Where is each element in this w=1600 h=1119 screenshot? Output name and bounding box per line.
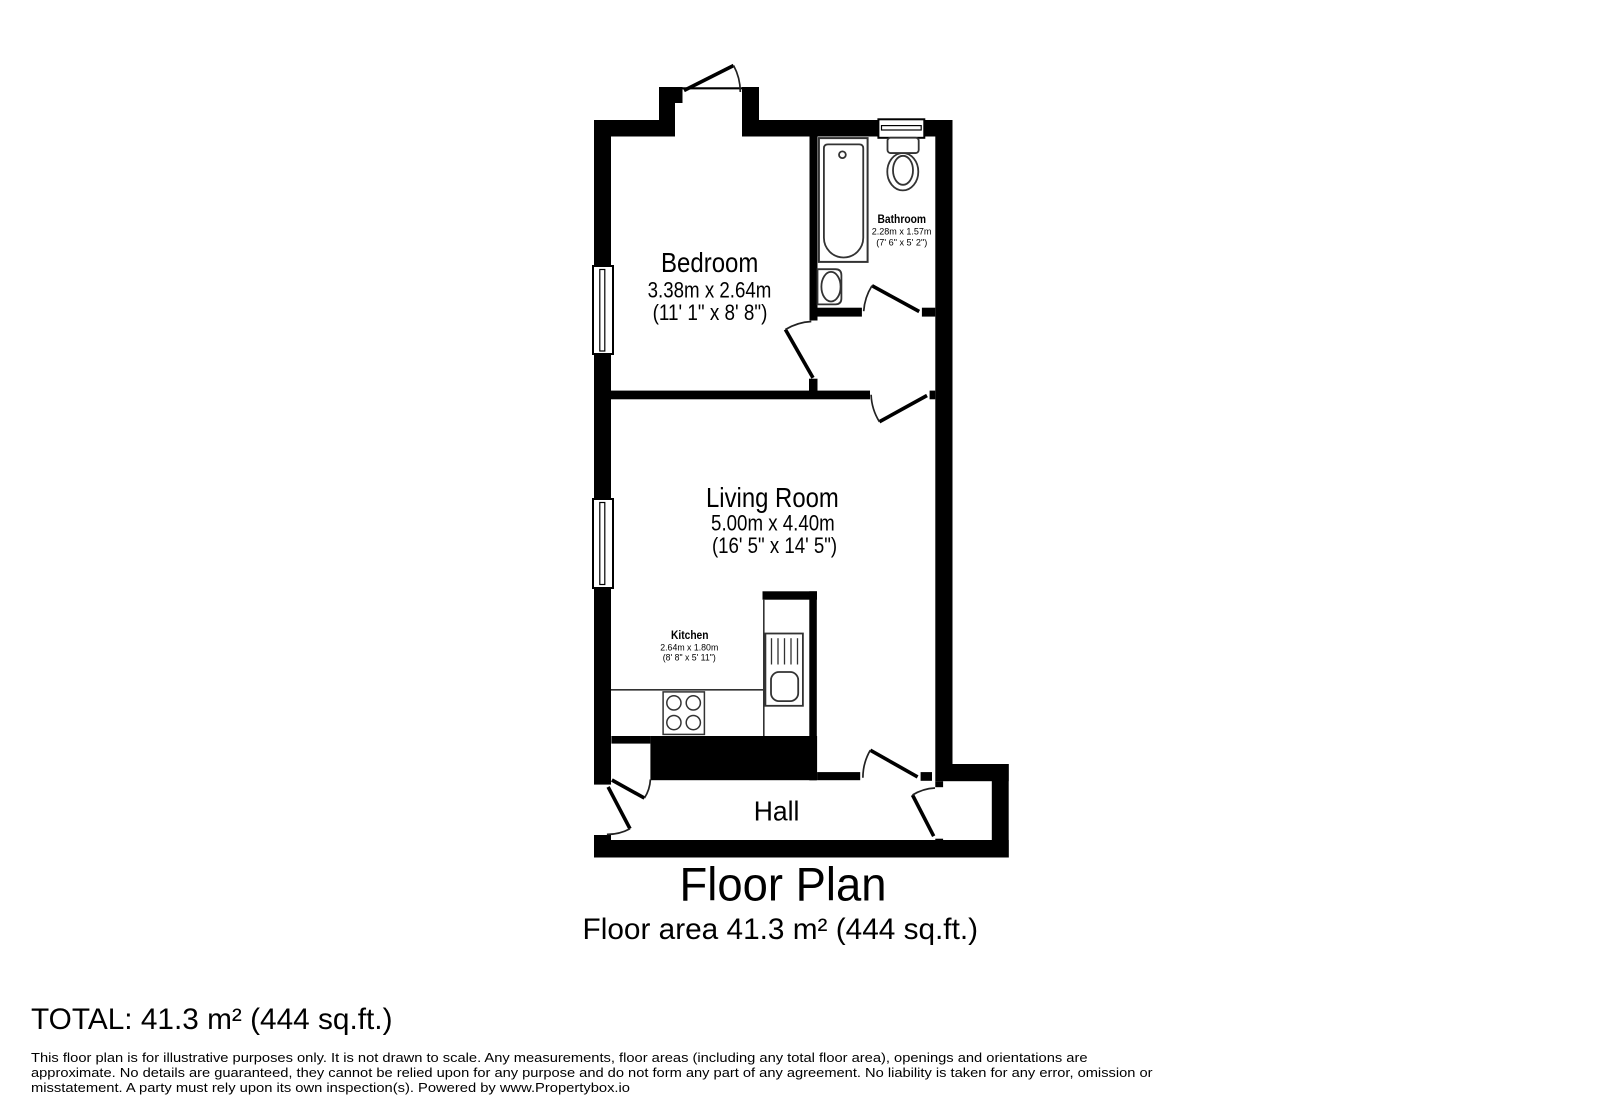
svg-text:3.38m x 2.64m: 3.38m x 2.64m xyxy=(648,277,772,302)
svg-text:2.28m x 1.57m: 2.28m x 1.57m xyxy=(872,226,932,237)
svg-text:Floor Plan: Floor Plan xyxy=(680,858,887,911)
svg-text:(7' 6" x 5' 2"): (7' 6" x 5' 2") xyxy=(876,238,927,249)
svg-text:(16' 5" x 14' 5"): (16' 5" x 14' 5") xyxy=(712,533,837,558)
svg-text:misstatement. A party must rel: misstatement. A party must rely upon its… xyxy=(31,1080,630,1095)
svg-text:This floor plan is for illustr: This floor plan is for illustrative purp… xyxy=(31,1050,1088,1065)
svg-text:Bedroom: Bedroom xyxy=(661,247,758,278)
svg-text:Hall: Hall xyxy=(754,796,800,827)
svg-text:Kitchen: Kitchen xyxy=(671,628,709,642)
svg-text:Living Room: Living Room xyxy=(706,482,839,513)
svg-text:(11' 1" x 8' 8"): (11' 1" x 8' 8") xyxy=(653,300,768,325)
svg-text:approximate. No details are gu: approximate. No details are guaranteed, … xyxy=(31,1065,1153,1080)
svg-text:TOTAL: 41.3 m² (444 sq.ft.): TOTAL: 41.3 m² (444 sq.ft.) xyxy=(31,1003,393,1036)
svg-text:5.00m x 4.40m: 5.00m x 4.40m xyxy=(711,511,835,536)
svg-text:Bathroom: Bathroom xyxy=(878,212,927,226)
svg-text:(8' 8" x 5' 11"): (8' 8" x 5' 11") xyxy=(663,653,716,664)
svg-text:Floor area 41.3 m² (444 sq.ft.: Floor area 41.3 m² (444 sq.ft.) xyxy=(583,913,979,946)
